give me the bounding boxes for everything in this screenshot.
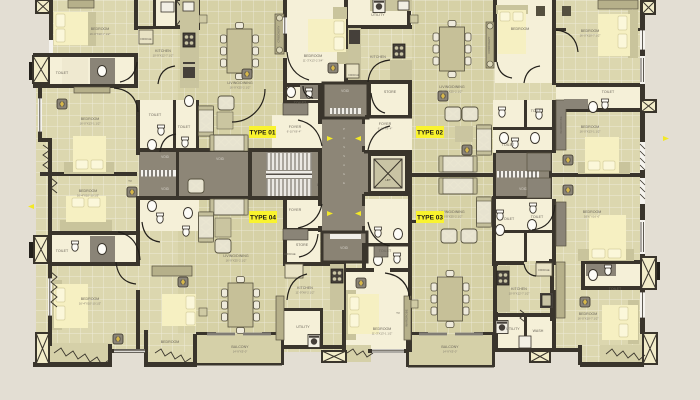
svg-text:TOILET: TOILET bbox=[56, 71, 69, 75]
svg-text:UTILITY: UTILITY bbox=[296, 325, 310, 329]
svg-text:11'-3"X13'-1 1/2": 11'-3"X13'-1 1/2" bbox=[372, 332, 393, 336]
svg-text:10'-9"X12'-7 1/2": 10'-9"X12'-7 1/2" bbox=[153, 54, 174, 58]
svg-text:TOILET: TOILET bbox=[502, 143, 515, 147]
svg-text:BEDROOM: BEDROOM bbox=[91, 27, 110, 31]
svg-text:BEDROOM: BEDROOM bbox=[511, 27, 530, 31]
svg-text:VOID: VOID bbox=[161, 155, 169, 159]
svg-text:16'-0"X10'-7 1/2": 16'-0"X10'-7 1/2" bbox=[90, 32, 111, 36]
svg-text:16'-0"X13'-1 1/2": 16'-0"X13'-1 1/2" bbox=[580, 130, 601, 134]
svg-text:FOYER: FOYER bbox=[289, 125, 302, 129]
svg-text:CROCKERY: CROCKERY bbox=[487, 37, 491, 54]
svg-text:KITCHEN: KITCHEN bbox=[155, 49, 171, 53]
svg-text:G: G bbox=[343, 172, 345, 176]
svg-text:VOID: VOID bbox=[341, 89, 349, 93]
svg-text:A: A bbox=[343, 136, 345, 140]
svg-text:TOILET: TOILET bbox=[602, 90, 615, 94]
svg-text:TYPE 01: TYPE 01 bbox=[249, 130, 275, 137]
svg-text:TV: TV bbox=[396, 311, 400, 315]
svg-text:FOYER: FOYER bbox=[379, 122, 392, 126]
svg-text:10'-9"X12'-7 1/2": 10'-9"X12'-7 1/2" bbox=[509, 292, 530, 296]
svg-text:TOILET: TOILET bbox=[531, 215, 544, 219]
svg-text:BEDROOM: BEDROOM bbox=[583, 210, 602, 214]
svg-text:BEDROOM: BEDROOM bbox=[81, 117, 100, 121]
svg-text:CROCKERY: CROCKERY bbox=[277, 26, 281, 43]
svg-text:FRIDGE: FRIDGE bbox=[348, 73, 359, 77]
svg-text:BEDROOM: BEDROOM bbox=[79, 189, 98, 193]
svg-text:16'-0"X10'-7 1/2": 16'-0"X10'-7 1/2" bbox=[578, 317, 599, 321]
svg-text:TYPE 04: TYPE 04 bbox=[250, 215, 276, 222]
svg-text:FRIDGE: FRIDGE bbox=[538, 268, 549, 272]
svg-text:TOILET: TOILET bbox=[379, 249, 392, 253]
svg-text:TOILET: TOILET bbox=[149, 113, 162, 117]
svg-text:LIVING/DINING: LIVING/DINING bbox=[227, 81, 253, 85]
svg-text:TOILET: TOILET bbox=[56, 249, 69, 253]
svg-text:LIVING/DINING: LIVING/DINING bbox=[223, 254, 249, 258]
svg-text:11'-9"X8'-2 1/2": 11'-9"X8'-2 1/2" bbox=[295, 291, 314, 295]
svg-text:FRIDGE: FRIDGE bbox=[140, 37, 151, 41]
svg-text:WASH: WASH bbox=[533, 329, 544, 333]
svg-text:UTILITY: UTILITY bbox=[371, 13, 385, 17]
svg-text:16'-0"X13'-1 1/2": 16'-0"X13'-1 1/2" bbox=[80, 122, 101, 126]
svg-text:TV: TV bbox=[128, 179, 132, 183]
svg-text:BEDROOM: BEDROOM bbox=[581, 125, 600, 129]
svg-text:TYPE 02: TYPE 02 bbox=[417, 130, 443, 137]
svg-text:BALCONY: BALCONY bbox=[441, 345, 459, 349]
svg-text:BEDROOM: BEDROOM bbox=[579, 312, 598, 316]
svg-text:BEDROOM: BEDROOM bbox=[161, 340, 180, 344]
svg-text:16'-9"X25'-2 1/2": 16'-9"X25'-2 1/2" bbox=[442, 215, 463, 219]
svg-text:16'-0"X16'-0": 16'-0"X16'-0" bbox=[584, 215, 600, 219]
svg-text:UTILITY: UTILITY bbox=[506, 327, 520, 331]
svg-text:14'-9"X5'-0": 14'-9"X5'-0" bbox=[233, 350, 248, 354]
svg-text:TOILET: TOILET bbox=[294, 101, 307, 105]
svg-text:A: A bbox=[343, 163, 345, 167]
svg-text:6'-10"X6'-4": 6'-10"X6'-4" bbox=[287, 130, 302, 134]
svg-text:P: P bbox=[343, 127, 345, 131]
svg-text:TYPE 03: TYPE 03 bbox=[417, 215, 443, 222]
svg-text:KITCHEN: KITCHEN bbox=[511, 287, 527, 291]
svg-text:TOILET: TOILET bbox=[531, 109, 544, 113]
svg-text:KITCHEN: KITCHEN bbox=[370, 55, 386, 59]
svg-text:16'-9"X25'-2 1/2": 16'-9"X25'-2 1/2" bbox=[442, 90, 463, 94]
svg-text:FRIDGE: FRIDGE bbox=[284, 252, 295, 256]
svg-text:KITCHEN: KITCHEN bbox=[297, 286, 313, 290]
svg-text:6'-10"X6'-4": 6'-10"X6'-4" bbox=[378, 127, 393, 131]
svg-text:VOID: VOID bbox=[216, 157, 224, 161]
svg-text:16'-9"X25'-2 1/2": 16'-9"X25'-2 1/2" bbox=[226, 259, 247, 263]
svg-text:BALCONY: BALCONY bbox=[231, 345, 249, 349]
svg-text:STORE: STORE bbox=[384, 90, 397, 94]
svg-text:TOILET: TOILET bbox=[178, 125, 191, 129]
svg-text:TOILET: TOILET bbox=[502, 217, 515, 221]
svg-text:16'-4"X10'-10 1/2": 16'-4"X10'-10 1/2" bbox=[79, 302, 101, 306]
svg-text:STORE: STORE bbox=[296, 243, 309, 247]
svg-text:WARDROBE: WARDROBE bbox=[405, 309, 409, 327]
svg-text:WARDROBE: WARDROBE bbox=[559, 116, 563, 134]
svg-text:S: S bbox=[343, 154, 345, 158]
svg-text:BEDROOM: BEDROOM bbox=[581, 29, 600, 33]
svg-text:16'-9"X25'-2 1/2": 16'-9"X25'-2 1/2" bbox=[230, 86, 251, 90]
svg-text:VOID: VOID bbox=[340, 246, 348, 250]
svg-text:S: S bbox=[343, 145, 345, 149]
svg-text:LIFT: LIFT bbox=[385, 178, 391, 182]
svg-text:E: E bbox=[343, 181, 345, 185]
svg-text:11'-3"X13'-2 3/4": 11'-3"X13'-2 3/4" bbox=[303, 59, 324, 63]
svg-text:TOILET: TOILET bbox=[609, 287, 622, 291]
svg-text:VOID: VOID bbox=[519, 187, 527, 191]
svg-text:LIVING/DINING: LIVING/DINING bbox=[439, 85, 465, 89]
svg-text:BEDROOM: BEDROOM bbox=[304, 54, 323, 58]
svg-text:14'-9"X5'-0": 14'-9"X5'-0" bbox=[443, 350, 458, 354]
svg-text:VOID: VOID bbox=[161, 187, 169, 191]
svg-text:16'-0"X10'-7 1/2": 16'-0"X10'-7 1/2" bbox=[580, 34, 601, 38]
svg-text:16'-4"X10'-10 1/2": 16'-4"X10'-10 1/2" bbox=[77, 194, 99, 198]
svg-text:FOYER: FOYER bbox=[289, 208, 302, 212]
svg-text:BEDROOM: BEDROOM bbox=[81, 297, 100, 301]
svg-text:BEDROOM: BEDROOM bbox=[373, 327, 392, 331]
